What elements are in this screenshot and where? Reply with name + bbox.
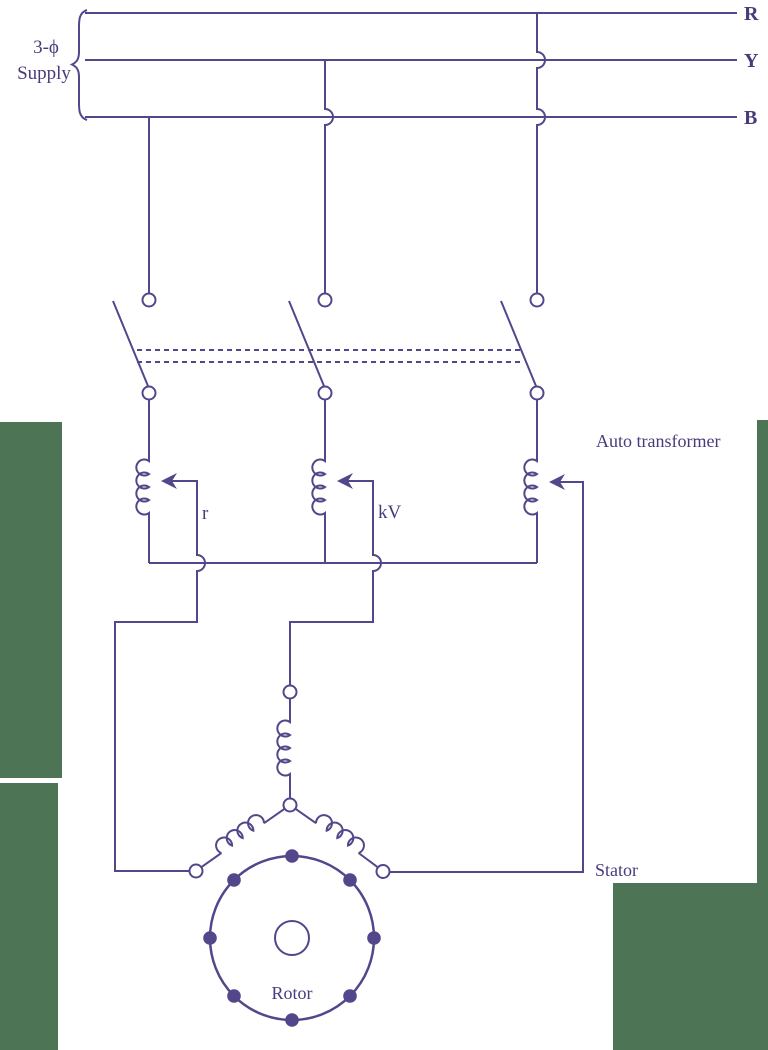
switch-top-terminal-2 (319, 294, 332, 307)
phase-label-r: R (744, 3, 759, 25)
stator-branch-right-upper (295, 809, 316, 824)
switch-top-terminal-3 (531, 294, 544, 307)
stator-terminal-right (377, 865, 390, 878)
stator-winding-right (315, 812, 367, 854)
filled-shapes (161, 473, 565, 1027)
autotransformer-coil-3 (524, 400, 537, 564)
switch-blade-2 (289, 301, 324, 386)
stator-branch-left-lower (201, 853, 221, 867)
switch-bottom-terminal-2 (319, 387, 332, 400)
rotor-slot-dot-topright (343, 873, 357, 887)
rotor-slot-dot-bottomleft (227, 989, 241, 1003)
autotransformer-coil-2 (312, 400, 325, 564)
supply-drop-2 (325, 60, 333, 294)
triple-pole-switch (113, 301, 536, 386)
stator-label: Stator (595, 860, 638, 880)
tap-label-kv: kV (378, 502, 402, 523)
green-panel-right-bar (757, 420, 768, 883)
tap-wire-3 (390, 482, 584, 872)
stator-winding-left (213, 812, 265, 854)
rotor-shaft-circle (275, 921, 309, 955)
switch-top-terminal-1 (143, 294, 156, 307)
rotor-slot-dot-topleft (227, 873, 241, 887)
phase-label-b: B (744, 107, 757, 129)
tap-wire-1 (115, 481, 205, 871)
rotor-slot-dot-bottom (285, 1013, 299, 1027)
rotor-slot-dot-bottomright (343, 989, 357, 1003)
tap-label-r: r (202, 503, 209, 524)
stator-winding-middle (277, 699, 290, 799)
stator-terminal-left (190, 865, 203, 878)
stator-terminal-middle (284, 686, 297, 699)
green-panel-left-upper (0, 422, 62, 778)
screenshot-root: 3-ϕ Supply R Y B r kV Auto transformer S… (0, 0, 768, 1050)
autotransformer-coil-1 (136, 400, 149, 564)
terminals (143, 294, 544, 879)
switch-blade-3 (501, 301, 536, 386)
rotor-slot-dot-top (285, 849, 299, 863)
rotor-slot-dot-right (367, 931, 381, 945)
phase-label-y: Y (744, 50, 759, 72)
supply-brace (72, 10, 87, 120)
autotransformer-label: Auto transformer (596, 431, 720, 451)
stator-branch-left-upper (264, 809, 285, 824)
stator-star-point (284, 799, 297, 812)
labels: 3-ϕ Supply R Y B r kV Auto transformer S… (17, 3, 759, 1003)
switch-bottom-terminal-3 (531, 387, 544, 400)
switch-bottom-terminal-1 (143, 387, 156, 400)
switch-blade-1 (113, 301, 148, 386)
stator-branch-right-lower (359, 853, 378, 867)
tap-wire-2 (290, 481, 381, 686)
green-panel-right-block (613, 883, 768, 1050)
circuit-diagram: 3-ϕ Supply R Y B r kV Auto transformer S… (0, 0, 768, 1050)
supply-label-line1: 3-ϕ (33, 37, 59, 58)
rotor-label: Rotor (271, 983, 312, 1003)
rotor-slot-dot-left (203, 931, 217, 945)
supply-drop-3 (537, 13, 545, 294)
green-panel-left-lower (0, 783, 58, 1050)
supply-label-line2: Supply (17, 63, 71, 84)
